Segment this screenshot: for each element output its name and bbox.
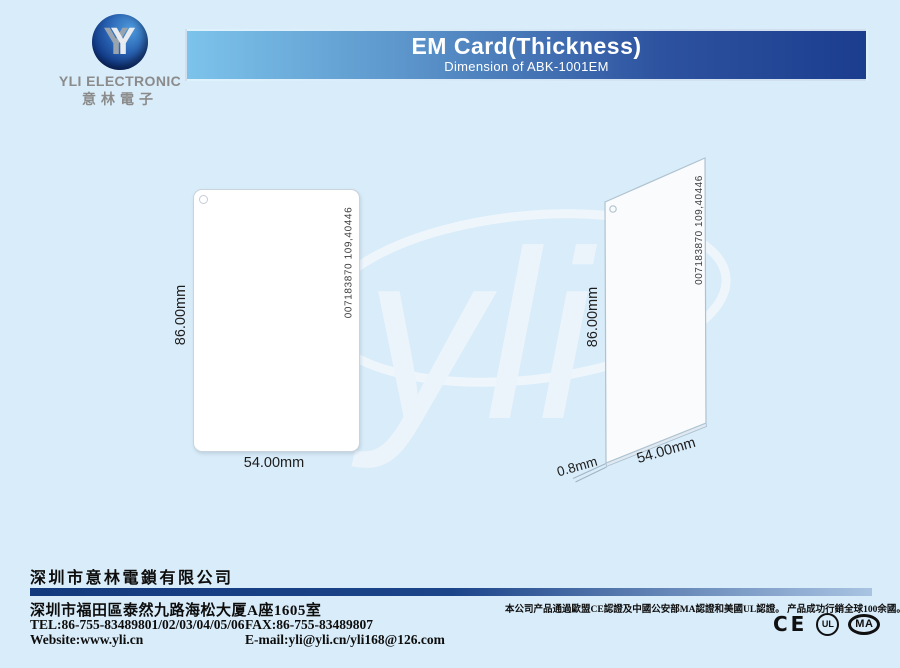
card-punch-hole (199, 195, 208, 204)
logo-sphere-icon: Y Y (92, 14, 148, 70)
card-punch-hole-side (610, 206, 616, 212)
logo-company-name-cn: 意林電子 (40, 89, 200, 109)
page-title: EM Card(Thickness) (187, 33, 866, 60)
footer-fax: FAX:86-755-83489807 (245, 617, 373, 633)
ma-mark-icon: MA (848, 614, 880, 635)
ul-mark-icon: UL (816, 613, 839, 636)
datasheet-page: yli Y Y YLI ELECTRONIC 意林電子 EM Card(Thic… (0, 0, 900, 668)
side-thickness-dimension: 0.8mm (555, 454, 599, 480)
card-front-view: 007183870 109,40446 (193, 189, 360, 452)
page-subtitle: Dimension of ABK-1001EM (187, 59, 866, 74)
side-height-dimension: 86.00mm (585, 287, 601, 347)
card-number-front: 007183870 109,40446 (344, 198, 357, 328)
footer-company-name: 深圳市意林電鎖有限公司 (30, 564, 234, 588)
card-side-view: 007183870 109,40446 86.00mm 0.8mm 54.00m… (540, 140, 750, 500)
certification-marks: CE UL MA (773, 612, 880, 636)
footer-website: Website:www.yli.cn (30, 632, 143, 648)
logo-company-name: YLI ELECTRONIC (40, 73, 200, 89)
ce-mark-icon: CE (773, 612, 807, 636)
footer-divider-bar (30, 588, 872, 596)
card-side-face (605, 158, 706, 463)
title-banner: EM Card(Thickness) Dimension of ABK-1001… (185, 29, 868, 81)
footer-email: E-mail:yli@yli.cn/yli168@126.com (245, 632, 445, 648)
footer-tel: TEL:86-755-83489801/02/03/04/05/06 (30, 617, 245, 633)
logo-y-monogram: Y (95, 14, 151, 70)
company-logo: Y Y YLI ELECTRONIC 意林電子 (40, 14, 200, 109)
card-number-side: 007183870 109,40446 (694, 175, 705, 285)
front-width-dimension: 54.00mm (234, 455, 314, 471)
front-height-dimension: 86.00mm (173, 275, 189, 355)
